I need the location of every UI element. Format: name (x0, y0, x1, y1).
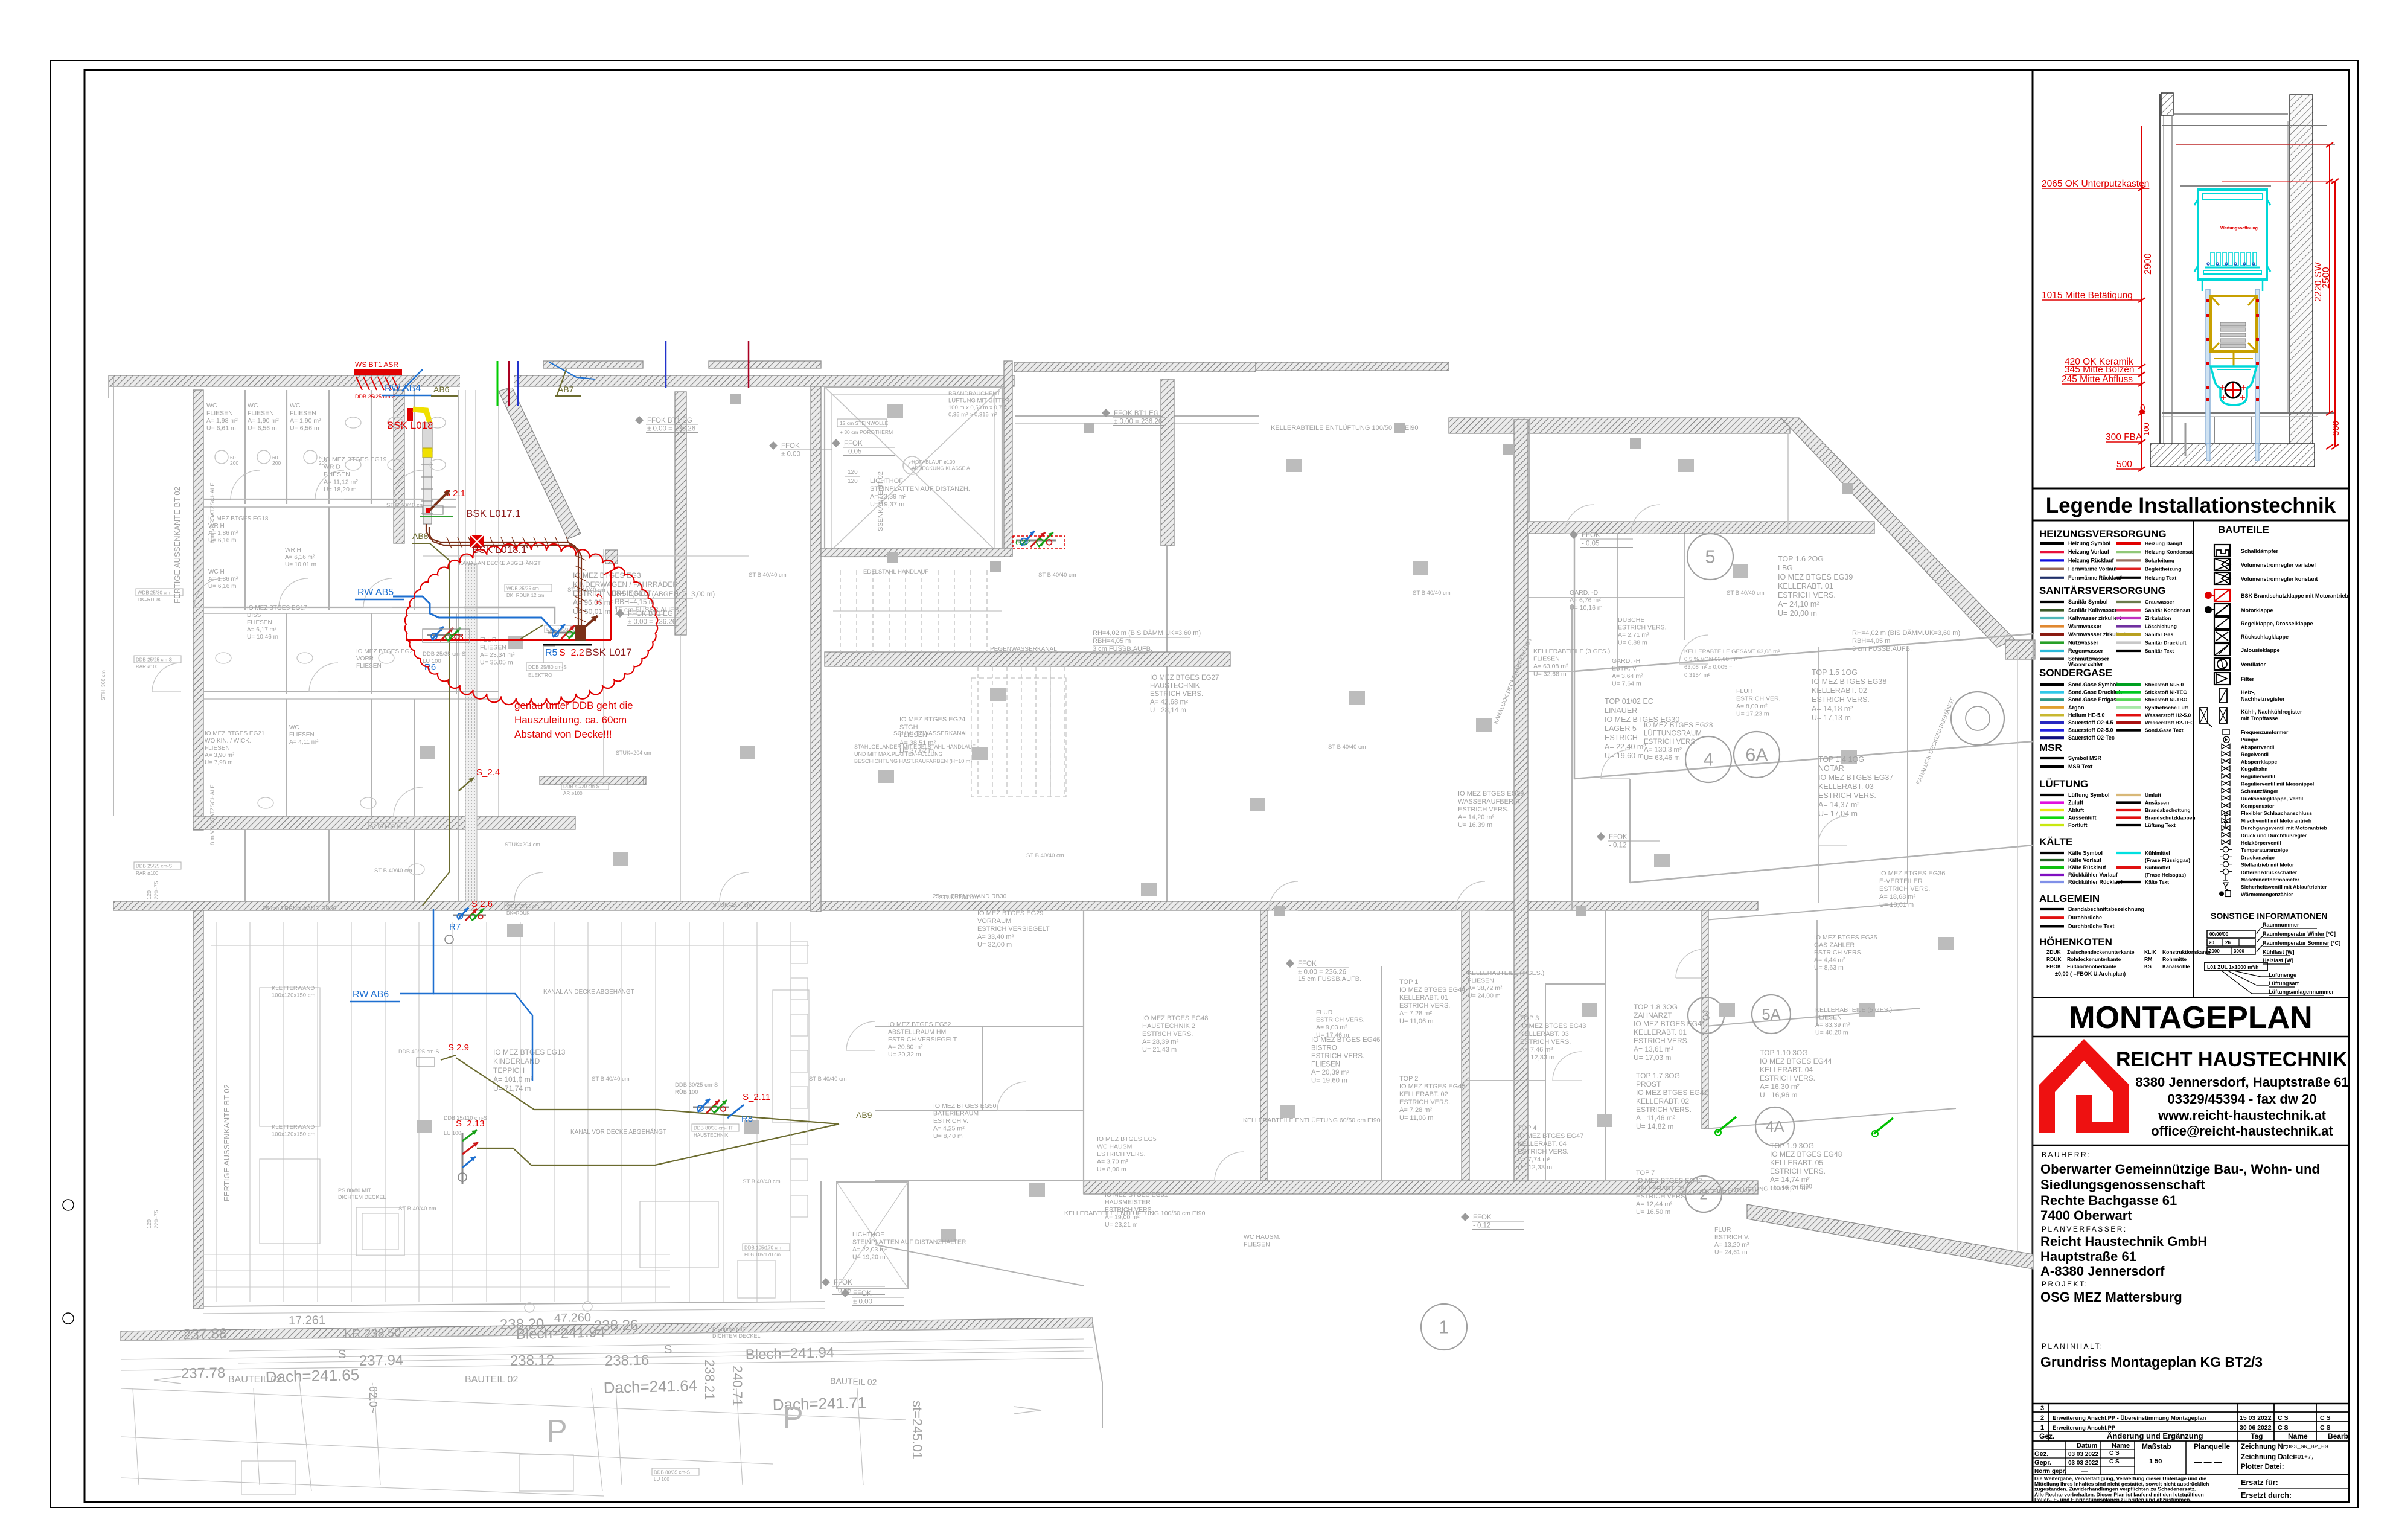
svg-text:Frequenzumformer: Frequenzumformer (2241, 729, 2289, 735)
svg-text:DDB 80/35 cm-S: DDB 80/35 cm-S (654, 1470, 690, 1475)
svg-text:LU 100: LU 100 (654, 1477, 669, 1482)
svg-text:PLANVERFASSER:: PLANVERFASSER: (2042, 1225, 2127, 1233)
svg-text:220+75: 220+75 (153, 881, 159, 899)
svg-text:IO MEZ BTGES EG29: IO MEZ BTGES EG29 (1458, 790, 1524, 797)
svg-text:WC: WC (206, 402, 217, 409)
svg-text:Legende Installationstechnik: Legende Installationstechnik (2046, 494, 2336, 517)
svg-text:RW AB4: RW AB4 (385, 383, 421, 394)
svg-text:Sanitär Text: Sanitär Text (2145, 648, 2174, 654)
svg-text:U= 12,33 m: U= 12,33 m (1520, 1054, 1554, 1061)
svg-text:Zuluft: Zuluft (2068, 800, 2083, 806)
svg-text:AB9: AB9 (856, 1110, 872, 1120)
svg-text:Rohrmitte: Rohrmitte (2162, 956, 2187, 962)
svg-text:Fernwärme Vorlauf: Fernwärme Vorlauf (2068, 566, 2118, 572)
svg-text:NOTAR: NOTAR (1818, 764, 1844, 773)
svg-text:U= 12,33 m: U= 12,33 m (1518, 1164, 1552, 1171)
svg-text:A= 1,90 m²: A= 1,90 m² (248, 417, 279, 424)
svg-text:Nutzwasser: Nutzwasser (2068, 640, 2099, 646)
svg-text:100x120x150 cm: 100x120x150 cm (272, 1131, 315, 1138)
svg-text:FFOK: FFOK (1609, 834, 1628, 841)
svg-text:00/00/00: 00/00/00 (2209, 931, 2229, 937)
svg-text:FLIESEN: FLIESEN (324, 471, 350, 478)
svg-text:KELLERABT. 02: KELLERABT. 02 (1399, 1091, 1448, 1098)
svg-text:120: 120 (848, 469, 858, 476)
svg-text:HAUSTECHNIK 2: HAUSTECHNIK 2 (1142, 1023, 1195, 1030)
svg-text:C S: C S (2320, 1424, 2331, 1431)
svg-text:RH=4,00 m (ABGEH. D=3,00 m): RH=4,00 m (ABGEH. D=3,00 m) (615, 591, 715, 598)
svg-text:Fußbodenoberkante: Fußbodenoberkante (2067, 963, 2116, 970)
svg-text:ST B 40/40 cm: ST B 40/40 cm (749, 572, 787, 578)
svg-text:TOP 7: TOP 7 (1636, 1169, 1655, 1177)
svg-text:Differenzdruckschalter: Differenzdruckschalter (2241, 869, 2298, 875)
svg-text:237.88: 237.88 (183, 1326, 228, 1343)
svg-text:Stickstoff NI-TBO: Stickstoff NI-TBO (2145, 697, 2188, 703)
svg-text:Schalldämpfer: Schalldämpfer (2241, 548, 2279, 554)
svg-text:IO MEZ BTGES EG45: IO MEZ BTGES EG45 (1399, 1083, 1465, 1090)
svg-text:Luftmenge: Luftmenge (2269, 972, 2296, 978)
svg-text:ST B 40/40 cm: ST B 40/40 cm (743, 1178, 781, 1185)
svg-text:Brandabschnittsbezeichnung: Brandabschnittsbezeichnung (2068, 906, 2144, 912)
svg-text:Regulierventil: Regulierventil (2241, 773, 2275, 779)
svg-text:ESTRICH VERS.: ESTRICH VERS. (1636, 1105, 1692, 1114)
svg-text:TOP 1.7 3OG: TOP 1.7 3OG (1636, 1072, 1680, 1080)
svg-text:ESTRICH VERS.: ESTRICH VERS. (1399, 1099, 1450, 1106)
svg-text:500: 500 (2116, 459, 2132, 470)
svg-text:Kompensator: Kompensator (2241, 803, 2275, 809)
svg-text:IO MEZ BTGES EG38: IO MEZ BTGES EG38 (1812, 677, 1886, 686)
svg-text:Brandabschottung: Brandabschottung (2145, 807, 2191, 813)
svg-text:R7: R7 (449, 922, 461, 932)
svg-text:238.16: 238.16 (605, 1352, 650, 1369)
svg-text:OG3_GR_BP_00: OG3_GR_BP_00 (2287, 1443, 2328, 1450)
svg-text:PROST: PROST (1636, 1080, 1661, 1088)
svg-text:FBOK: FBOK (2046, 963, 2062, 970)
svg-text:Abluft: Abluft (2068, 807, 2084, 813)
svg-text:WDB 25/25 cm: WDB 25/25 cm (506, 586, 539, 592)
svg-text:FLUR: FLUR (1316, 1009, 1333, 1016)
svg-text:R8: R8 (741, 1114, 753, 1124)
svg-text:ALLGEMEIN: ALLGEMEIN (2039, 893, 2100, 904)
svg-text:Reicht Haustechnik GmbH: Reicht Haustechnik GmbH (2040, 1234, 2207, 1249)
svg-text:25 cm TRENNWAND RB30: 25 cm TRENNWAND RB30 (933, 893, 1007, 900)
svg-text:Begleitheizung: Begleitheizung (2145, 566, 2181, 572)
svg-text:Kühlmittel: Kühlmittel (2145, 864, 2170, 871)
svg-text:U= 35,05 m: U= 35,05 m (480, 659, 513, 666)
svg-text:WC HAUSM.: WC HAUSM. (1244, 1233, 1280, 1241)
svg-text:200: 200 (272, 460, 281, 466)
svg-text:8380 Jennersdorf, Hauptstraße: 8380 Jennersdorf, Hauptstraße 61 (2135, 1075, 2348, 1090)
svg-text:LÜFTUNGSRAUM: LÜFTUNGSRAUM (1644, 730, 1702, 738)
svg-text:OSG MEZ Mattersburg: OSG MEZ Mattersburg (2040, 1289, 2182, 1305)
svg-text:A= 20,80 m²: A= 20,80 m² (888, 1044, 923, 1051)
svg-text:Warmwasser: Warmwasser (2068, 624, 2102, 630)
svg-text:FLIESEN: FLIESEN (205, 745, 230, 752)
svg-text:GARD. -H: GARD. -H (1612, 657, 1640, 665)
svg-text:S_2.4: S_2.4 (476, 767, 500, 778)
svg-text:ESTRICH V.: ESTRICH V. (933, 1117, 968, 1125)
svg-text:TOP 3: TOP 3 (1520, 1015, 1539, 1022)
svg-text:Durchgangsventil mit Motorantr: Durchgangsventil mit Motorantrieb (2241, 825, 2327, 831)
svg-text:Lüftung Symbol: Lüftung Symbol (2068, 792, 2110, 798)
svg-text:KLETTERWAND: KLETTERWAND (272, 985, 315, 992)
svg-text:Durchbrüche Text: Durchbrüche Text (2068, 923, 2114, 929)
svg-text:SONDERGASE: SONDERGASE (2039, 667, 2112, 679)
svg-text:IO MEZ BTGES EG39: IO MEZ BTGES EG39 (1778, 573, 1853, 581)
svg-text:P: P (546, 1414, 567, 1449)
svg-text:120: 120 (848, 478, 858, 485)
svg-text:IO MEZ BTGES EG51: IO MEZ BTGES EG51 (1105, 1191, 1168, 1198)
svg-text:Filter: Filter (2241, 676, 2255, 682)
svg-text:WC: WC (289, 724, 299, 731)
svg-text:FLIESEN: FLIESEN (1244, 1241, 1270, 1248)
svg-text:A= 18,68 m²: A= 18,68 m² (1879, 893, 1916, 901)
svg-text:KELLERABT. 02: KELLERABT. 02 (1812, 686, 1867, 695)
svg-text:5: 5 (1705, 547, 1716, 567)
svg-text:TOP 1.8 3OG: TOP 1.8 3OG (1634, 1003, 1678, 1011)
svg-text:Sond.Gase Symbol: Sond.Gase Symbol (2068, 682, 2118, 688)
svg-text:KELLERABT. 03: KELLERABT. 03 (1818, 782, 1874, 791)
svg-text:Temperaturanzeige: Temperaturanzeige (2241, 847, 2288, 853)
svg-text:RH=4,02 m (BIS DÄMM.UK=3,60 m): RH=4,02 m (BIS DÄMM.UK=3,60 m) (1852, 630, 1960, 637)
svg-text:Heiz-,: Heiz-, (2241, 689, 2255, 695)
svg-text:Fortluft: Fortluft (2068, 822, 2088, 828)
svg-text:Zirkulation: Zirkulation (2145, 615, 2171, 621)
svg-text:FLIESEN: FLIESEN (1468, 977, 1494, 985)
svg-text:KS: KS (2144, 963, 2152, 970)
svg-text:ESTRICH VERS.: ESTRICH VERS. (1818, 791, 1876, 800)
svg-text:ESTRICH VERS.: ESTRICH VERS. (1311, 1053, 1364, 1060)
svg-text:A= 38,72 m²: A= 38,72 m² (1468, 985, 1503, 992)
svg-text:www.reicht-haustechnik.at: www.reicht-haustechnik.at (2158, 1108, 2327, 1123)
svg-text:R5: R5 (545, 648, 558, 658)
svg-text:ST B 40/40 cm: ST B 40/40 cm (567, 587, 605, 593)
svg-text:240.71: 240.71 (730, 1366, 745, 1406)
svg-text:Absperrventil: Absperrventil (2241, 744, 2274, 750)
svg-text:A= 16,30 m²: A= 16,30 m² (1760, 1082, 1800, 1091)
svg-text:Flexibler Schlauchanschluss: Flexibler Schlauchanschluss (2241, 810, 2312, 816)
svg-text:STEINPLATTEN AUF DISTANZH.: STEINPLATTEN AUF DISTANZH. (870, 485, 970, 493)
svg-text:ST B 40/40 cm: ST B 40/40 cm (1727, 590, 1765, 596)
svg-text:Kanalsohle: Kanalsohle (2162, 963, 2190, 970)
svg-text:Sanitär Kondensat: Sanitär Kondensat (2145, 607, 2190, 613)
svg-text:A= 4,11 m²: A= 4,11 m² (289, 739, 319, 746)
svg-text:SONSTIGE INFORMATIONEN: SONSTIGE INFORMATIONEN (2211, 911, 2327, 921)
svg-text:Wasserstoff H2-TEC: Wasserstoff H2-TEC (2145, 720, 2194, 726)
svg-text:Wasserstoff H2-5.0: Wasserstoff H2-5.0 (2145, 712, 2191, 718)
svg-text:- 0.05: - 0.05 (844, 449, 861, 456)
svg-text:Sauerstoff O2-Tec: Sauerstoff O2-Tec (2068, 735, 2115, 741)
svg-text:Heizung Kondensat: Heizung Kondensat (2145, 549, 2193, 555)
svg-text:BSK L017: BSK L017 (586, 647, 632, 658)
svg-text:U= 7,64 m: U= 7,64 m (1612, 680, 1641, 688)
svg-text:TOP 4: TOP 4 (1518, 1125, 1536, 1132)
svg-text:RW AB5: RW AB5 (357, 587, 394, 598)
svg-text:Dach=241.65: Dach=241.65 (265, 1366, 359, 1386)
svg-text:ESTRICH VERSIEGELT: ESTRICH VERSIEGELT (977, 925, 1050, 933)
svg-text:RÜB 100: RÜB 100 (675, 1089, 698, 1096)
svg-text:E-VERTEILER: E-VERTEILER (1879, 878, 1923, 885)
svg-text:BAUTEILE: BAUTEILE (2218, 524, 2269, 535)
svg-text:A= 33,40 m²: A= 33,40 m² (977, 933, 1014, 941)
svg-text:5A: 5A (1762, 1006, 1781, 1023)
svg-text:IO MEZ BTGES EG42: IO MEZ BTGES EG42 (1636, 1088, 1708, 1097)
svg-text:KELLERABTEILE ENTLÜFTUNG 60/50: KELLERABTEILE ENTLÜFTUNG 60/50 cm EI90 (1243, 1117, 1381, 1124)
svg-text:FERTIGE AUSSENKANTE BT 02: FERTIGE AUSSENKANTE BT 02 (173, 487, 182, 604)
svg-text:TOP 1.9 3OG: TOP 1.9 3OG (1770, 1142, 1814, 1150)
svg-text:Motorklappe: Motorklappe (2241, 607, 2273, 613)
svg-text:DUSCHE: DUSCHE (1618, 616, 1644, 624)
svg-text:KANAL AN DECKE ABGEHÄNGT: KANAL AN DECKE ABGEHÄNGT (459, 560, 541, 566)
svg-text:A= 9,03 m²: A= 9,03 m² (1316, 1024, 1347, 1031)
svg-text:U= 6,56 m: U= 6,56 m (290, 425, 319, 432)
svg-text:Tag: Tag (2251, 1432, 2263, 1440)
svg-text:IO MEZ BTGES EG36: IO MEZ BTGES EG36 (1879, 870, 1945, 877)
svg-text:FERTIGE AUSSENKANTE BT 02: FERTIGE AUSSENKANTE BT 02 (222, 1084, 231, 1201)
svg-text:BAUHERR:: BAUHERR: (2042, 1151, 2091, 1159)
svg-text:3000: 3000 (2234, 948, 2244, 954)
svg-text:A= 6,17 m²: A= 6,17 m² (247, 627, 277, 633)
svg-text:DDB 105/170 cm: DDB 105/170 cm (744, 1245, 781, 1251)
svg-text:WASSERAUFBER.R.: WASSERAUFBER.R. (1458, 798, 1522, 805)
svg-text:Hauszuleitung. ca. 60cm: Hauszuleitung. ca. 60cm (514, 714, 627, 726)
svg-text:DK=RDUK: DK=RDUK (138, 597, 161, 602)
svg-text:ZAHNARZT: ZAHNARZT (1634, 1011, 1673, 1020)
svg-text:BAUTEIL 02: BAUTEIL 02 (830, 1376, 877, 1387)
svg-text:ESTRICH VERS.: ESTRICH VERS. (1316, 1017, 1365, 1024)
svg-text:3 cm FUSSB.AUFB.: 3 cm FUSSB.AUFB. (1852, 645, 1912, 653)
svg-text:FFOK: FFOK (834, 1279, 852, 1286)
svg-text:C S: C S (2278, 1414, 2289, 1422)
svg-text:0,5 % VON 63,08 m² =: 0,5 % VON 63,08 m² = (1684, 656, 1742, 663)
svg-text:KANAL AN DECKE ABGEHÄNGT: KANAL AN DECKE ABGEHÄNGT (543, 988, 634, 995)
svg-text:R6: R6 (424, 662, 436, 673)
svg-text:U= 6,61 m: U= 6,61 m (206, 425, 236, 432)
svg-text:Sanitär Kaltwasser: Sanitär Kaltwasser (2068, 607, 2117, 613)
svg-text:TOP 1: TOP 1 (1399, 979, 1418, 986)
svg-text:U= 19,60 m: U= 19,60 m (1605, 752, 1644, 760)
svg-text:LU 100: LU 100 (444, 1130, 461, 1136)
svg-text:Wärmemengenzähler: Wärmemengenzähler (2241, 891, 2293, 897)
svg-text:ABDECKUNG KLASSE A: ABDECKUNG KLASSE A (912, 465, 970, 471)
svg-text:KELLERABTEILE (4 GES.): KELLERABTEILE (4 GES.) (1468, 970, 1544, 977)
svg-text:Stickstoff NI-5.0: Stickstoff NI-5.0 (2145, 682, 2184, 688)
svg-text:Gez.: Gez. (2034, 1451, 2048, 1458)
svg-text:U= 19,37 m: U= 19,37 m (870, 501, 904, 508)
svg-text:Plotter Datei:: Plotter Datei: (2241, 1463, 2284, 1471)
svg-text:S_2.11: S_2.11 (743, 1092, 770, 1102)
svg-text:U= 32,00 m: U= 32,00 m (977, 941, 1012, 948)
svg-text:ESTRICH VERS.: ESTRICH VERS. (1518, 1148, 1568, 1155)
svg-text:8 m VORSATZSCHALE: 8 m VORSATZSCHALE (209, 784, 216, 845)
svg-text:WS BT1 ASR: WS BT1 ASR (355, 360, 398, 369)
svg-text:Kugelhahn: Kugelhahn (2241, 766, 2267, 772)
svg-text:AB8: AB8 (412, 531, 429, 541)
svg-text:A= 22,03 m²: A= 22,03 m² (852, 1246, 887, 1253)
svg-text:Heizkörperventil: Heizkörperventil (2241, 840, 2281, 846)
svg-text:U= 10,16 m: U= 10,16 m (1570, 604, 1603, 612)
svg-text:STEINPLATTEN AUF DISTANZHALTER: STEINPLATTEN AUF DISTANZHALTER (852, 1239, 966, 1246)
svg-text:03 03 2022: 03 03 2022 (2068, 1460, 2098, 1466)
svg-text:AB6: AB6 (433, 385, 450, 394)
svg-text:WDB 25/25 cm: WDB 25/25 cm (506, 904, 539, 909)
svg-text:200: 200 (319, 460, 327, 466)
svg-text:AR ø100: AR ø100 (563, 791, 583, 796)
svg-text:Hauptstraße 61: Hauptstraße 61 (2040, 1249, 2136, 1264)
svg-text:RBH=4,05 m: RBH=4,05 m (1093, 637, 1131, 645)
svg-text:IO MEZ BTGES EG27: IO MEZ BTGES EG27 (1150, 674, 1219, 682)
svg-text:ESTRICH VERSIEGELT: ESTRICH VERSIEGELT (888, 1036, 957, 1043)
svg-text:120: 120 (146, 890, 152, 899)
svg-text:U= 19,60 m: U= 19,60 m (1311, 1078, 1347, 1085)
svg-text:FDB 105/170 cm: FDB 105/170 cm (744, 1252, 781, 1257)
svg-text:2500: 2500 (2321, 267, 2331, 289)
svg-text:Durchbrüche: Durchbrüche (2068, 915, 2102, 921)
svg-text:20: 20 (2209, 940, 2214, 945)
svg-text:A= 14,18 m²: A= 14,18 m² (1812, 705, 1853, 713)
svg-text:Sond.Gase Erdgas: Sond.Gase Erdgas (2068, 697, 2116, 703)
svg-text:BSK Brandschutzklappe mit Moto: BSK Brandschutzklappe mit Motorantrieb (2241, 593, 2349, 599)
svg-text:U= 32,68 m: U= 32,68 m (1533, 671, 1567, 678)
svg-text:DDB 25/80 cm-S: DDB 25/80 cm-S (528, 664, 567, 670)
svg-text:WC HAUSM: WC HAUSM (1097, 1143, 1132, 1151)
svg-text:300 FBA: 300 FBA (2106, 432, 2142, 443)
svg-text:2.3: 2.3 (451, 632, 464, 642)
svg-text:30 06 2022: 30 06 2022 (2240, 1424, 2272, 1431)
svg-text:PS 80/80 MIT: PS 80/80 MIT (712, 1326, 746, 1332)
svg-text:245 Mitte Abfluss: 245 Mitte Abfluss (2062, 374, 2133, 385)
svg-text:—: — (2081, 1468, 2088, 1475)
svg-text:220+75: 220+75 (153, 1210, 159, 1228)
svg-text:Pumpe: Pumpe (2241, 736, 2258, 743)
svg-text:KELLERABT. 01: KELLERABT. 01 (1634, 1028, 1687, 1037)
svg-text:U= 17,23 m: U= 17,23 m (1736, 711, 1769, 718)
svg-text:Ventilator: Ventilator (2241, 662, 2266, 668)
svg-text:TOP 01/02 EC: TOP 01/02 EC (1605, 697, 1653, 706)
svg-text:TEPPICH: TEPPICH (493, 1066, 525, 1075)
svg-text:BATERIERAUM: BATERIERAUM (933, 1110, 979, 1117)
svg-text:KELLERABTEILE ENTLÜFTUNG 100/5: KELLERABTEILE ENTLÜFTUNG 100/50 cm EI90 (1064, 1210, 1206, 1217)
svg-text:IO MEZ BTGES EG43: IO MEZ BTGES EG43 (1520, 1023, 1586, 1030)
svg-text:FLIESEN: FLIESEN (1533, 656, 1560, 663)
svg-text:± 0.00: ± 0.00 (853, 1299, 872, 1306)
svg-text:DDB 80/35 cm-HT: DDB 80/35 cm-HT (694, 1126, 733, 1131)
svg-text:ESTRICH VERS.: ESTRICH VERS. (1618, 624, 1667, 631)
svg-text:ELEKTRO: ELEKTRO (528, 672, 552, 678)
svg-text:Schmutzfänger: Schmutzfänger (2241, 788, 2279, 794)
svg-text:RDUK: RDUK (2046, 956, 2062, 962)
svg-text:Zeichnung Nr:: Zeichnung Nr: (2241, 1443, 2288, 1451)
svg-text:Heizung Rücklauf: Heizung Rücklauf (2068, 557, 2115, 563)
svg-text:A= 22,40 m²: A= 22,40 m² (1605, 743, 1646, 751)
svg-text:Mischventil mit Motorantrieb: Mischventil mit Motorantrieb (2241, 817, 2311, 823)
svg-text:Sanitär Symbol: Sanitär Symbol (2068, 599, 2108, 605)
svg-text:IO MEZ BTGES EG18: IO MEZ BTGES EG18 (208, 516, 269, 522)
svg-text:U= 23,21 m: U= 23,21 m (1105, 1221, 1138, 1228)
svg-text:A= 28,39 m²: A= 28,39 m² (1142, 1038, 1179, 1046)
svg-text:U= 21,43 m: U= 21,43 m (1142, 1046, 1177, 1053)
svg-text:KANAL VOR DECKE ABGEHÄNGT: KANAL VOR DECKE ABGEHÄNGT (570, 1128, 666, 1136)
svg-text:Raumtemperatur Winter [°C]: Raumtemperatur Winter [°C] (2263, 931, 2336, 937)
svg-text:Ersatz für:: Ersatz für: (2241, 1478, 2278, 1487)
svg-text:Kühl-, Nachkühlregister: Kühl-, Nachkühlregister (2241, 709, 2302, 715)
svg-text:15 cm FUSSB.AUFB.: 15 cm FUSSB.AUFB. (1298, 976, 1361, 983)
svg-text:IO MEZ BTGES EG30: IO MEZ BTGES EG30 (1605, 715, 1679, 724)
svg-text:Blech=241.94: Blech=241.94 (745, 1344, 834, 1363)
svg-text:Erweiterung Anschl.PP - Überei: Erweiterung Anschl.PP - Übereinstimmung … (2053, 1415, 2206, 1422)
svg-text:HAUSTECHNIK: HAUSTECHNIK (694, 1133, 729, 1138)
svg-text:FLIESEN: FLIESEN (247, 619, 272, 626)
svg-text:ESTR. V.: ESTR. V. (1612, 665, 1638, 673)
svg-text:BAUTEIL 02: BAUTEIL 02 (465, 1375, 518, 1385)
svg-text:Argon: Argon (2068, 705, 2085, 711)
svg-text:PS 80/80 MIT: PS 80/80 MIT (338, 1187, 372, 1193)
svg-text:RBH=4,05 m: RBH=4,05 m (1852, 637, 1890, 645)
svg-text:FFOK: FFOK (781, 443, 800, 450)
svg-text:SCHMUTZWASSERKANAL: SCHMUTZWASSERKANAL (893, 730, 969, 737)
svg-text:G32: G32 (1015, 538, 1030, 547)
svg-text:Rohdeckenunterkante: Rohdeckenunterkante (2067, 956, 2121, 962)
svg-text:Dach=241.64: Dach=241.64 (603, 1376, 697, 1397)
svg-text:S 2.6: S 2.6 (471, 899, 493, 909)
svg-text:A= 7,46 m²: A= 7,46 m² (1520, 1046, 1553, 1053)
svg-text:Blech=241.94: Blech=241.94 (516, 1324, 605, 1343)
svg-text:C S: C S (2109, 1459, 2120, 1465)
svg-text:BESCHICHTUNG HAST.RAUFARBEN (H: BESCHICHTUNG HAST.RAUFARBEN (H=10 m) (854, 758, 972, 764)
svg-text:HAUSTECHNIK: HAUSTECHNIK (1150, 683, 1200, 690)
svg-text:Rückkühler Vorlauf: Rückkühler Vorlauf (2068, 872, 2118, 878)
svg-text:A= 1,98 m²: A= 1,98 m² (206, 417, 238, 424)
svg-text:mit Tropftasse: mit Tropftasse (2241, 715, 2278, 721)
svg-text:A= 11,46 m²: A= 11,46 m² (1636, 1114, 1675, 1122)
svg-text:TOP 1.5 1OG: TOP 1.5 1OG (1812, 668, 1858, 677)
svg-text:U= 24,00 m: U= 24,00 m (1468, 992, 1501, 1000)
svg-text:Stellantrieb mit Motor: Stellantrieb mit Motor (2241, 862, 2295, 868)
svg-text:-62.0~: -62.0~ (367, 1382, 379, 1414)
svg-text:LÜFTUNG MIT GITTER: LÜFTUNG MIT GITTER (948, 398, 1009, 404)
svg-text:KELLERABT. 02: KELLERABT. 02 (1636, 1097, 1689, 1105)
svg-text:A= 11,12 m²: A= 11,12 m² (324, 479, 358, 486)
svg-text:RAR ø100: RAR ø100 (136, 871, 159, 876)
svg-text:U= 11,06 m: U= 11,06 m (1399, 1018, 1433, 1025)
svg-text:WO KIN. / WICK.: WO KIN. / WICK. (205, 738, 251, 744)
svg-text:(Frase Heissgas): (Frase Heissgas) (2145, 872, 2186, 878)
svg-text:Sanitär Druckluft: Sanitär Druckluft (2145, 640, 2187, 646)
svg-text:FFOK BT1 EG: FFOK BT1 EG (647, 417, 692, 424)
svg-text:U= 20,32 m: U= 20,32 m (888, 1051, 921, 1058)
svg-text:A= 14,37 m²: A= 14,37 m² (1818, 800, 1859, 809)
svg-text:U= 11,06 m: U= 11,06 m (1399, 1114, 1433, 1122)
svg-text:FFOK: FFOK (1298, 960, 1317, 968)
svg-text:ST B 40/40 cm: ST B 40/40 cm (592, 1076, 630, 1082)
svg-text:A= 7,28 m²: A= 7,28 m² (1399, 1010, 1432, 1017)
svg-text:WDB 25/30 cm: WDB 25/30 cm (138, 590, 170, 596)
svg-text:Kälte Vorlauf: Kälte Vorlauf (2068, 857, 2102, 863)
svg-text:Kühlmittel: Kühlmittel (2145, 850, 2170, 856)
svg-text:U= 20,00 m: U= 20,00 m (1778, 609, 1817, 618)
svg-text:WR H: WR H (285, 547, 301, 554)
svg-text:Synthetische Luft: Synthetische Luft (2145, 705, 2188, 711)
svg-text:DICHTEM DECKEL: DICHTEM DECKEL (712, 1333, 761, 1339)
svg-text:1 50: 1 50 (2149, 1458, 2162, 1465)
svg-text:4: 4 (1704, 750, 1714, 770)
svg-text:RW AB6: RW AB6 (353, 989, 389, 1000)
svg-text:SSENKANTE BT 02: SSENKANTE BT 02 (877, 471, 884, 531)
svg-text:genau unter DDB geht die: genau unter DDB geht die (514, 700, 633, 711)
svg-text:STUK=204 cm: STUK=204 cm (616, 750, 651, 756)
svg-text:U= 37,62 m: U= 37,62 m (899, 747, 934, 755)
svg-text:Grauwasser: Grauwasser (2145, 599, 2174, 605)
svg-text:- 0.05: - 0.05 (1582, 540, 1599, 548)
